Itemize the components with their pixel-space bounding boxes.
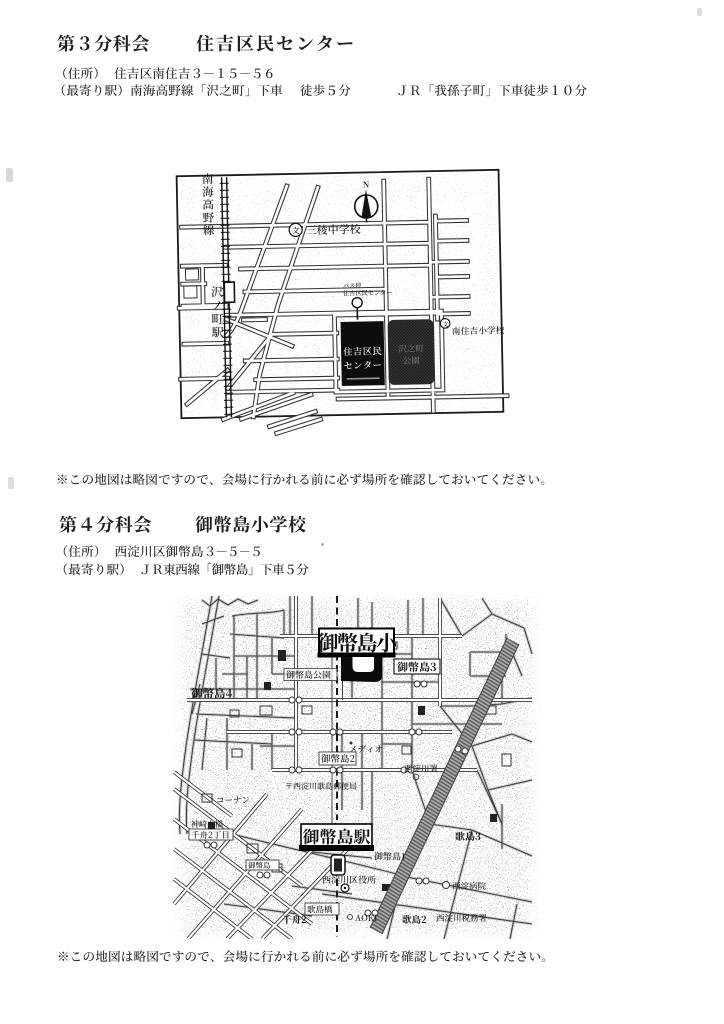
- svg-text:御幣島公園: 御幣島公園: [286, 668, 331, 681]
- svg-text:沢之町: 沢之町: [398, 342, 424, 355]
- svg-text:歌島3: 歌島3: [455, 828, 481, 843]
- svg-text:公園: 公園: [403, 354, 421, 366]
- svg-text:メディオ: メディオ: [349, 743, 383, 755]
- svg-text:コーナン: コーナン: [216, 794, 250, 806]
- svg-text:御幣島1: 御幣島1: [374, 850, 405, 863]
- svg-text:西淀川区役所: 西淀川区役所: [322, 873, 376, 886]
- svg-text:御幣島3: 御幣島3: [397, 659, 437, 675]
- svg-text:西淀川税務署: 西淀川税務署: [436, 912, 488, 924]
- svg-text:西淀病院: 西淀病院: [452, 880, 487, 892]
- svg-text:住吉区民センター: 住吉区民センター: [343, 287, 393, 297]
- svg-text:南海高野線: 南海高野線: [200, 172, 217, 236]
- svg-text:AOKI: AOKI: [355, 912, 378, 924]
- svg-text:N: N: [363, 179, 370, 190]
- svg-text:御幣島: 御幣島: [248, 860, 271, 871]
- svg-text:沢ノ町駅: 沢ノ町駅: [208, 285, 226, 339]
- svg-text:千舟2: 千舟2: [282, 912, 307, 926]
- svg-text:センター: センター: [343, 357, 382, 372]
- svg-text:住吉区民: 住吉区民: [343, 343, 382, 358]
- svg-text:御幣島4: 御幣島4: [191, 686, 232, 702]
- svg-text:文: 文: [292, 225, 300, 236]
- svg-text:歌島2: 歌島2: [402, 912, 427, 926]
- svg-text:南住吉小学校: 南住吉小学校: [452, 323, 505, 337]
- svg-text:文: 文: [442, 319, 448, 328]
- svg-text:〒西淀川歌島郵便局: 〒西淀川歌島郵便局: [285, 781, 357, 792]
- svg-text:千舟2丁目: 千舟2丁目: [191, 829, 230, 841]
- svg-text:三稜中学校: 三稜中学校: [306, 221, 361, 238]
- svg-text:歌島橋: 歌島橋: [307, 904, 333, 916]
- svg-text:西淀川署: 西淀川署: [404, 763, 439, 775]
- svg-text:御幣島駅: 御幣島駅: [303, 823, 371, 848]
- svg-text:御幣島小: 御幣島小: [318, 628, 397, 658]
